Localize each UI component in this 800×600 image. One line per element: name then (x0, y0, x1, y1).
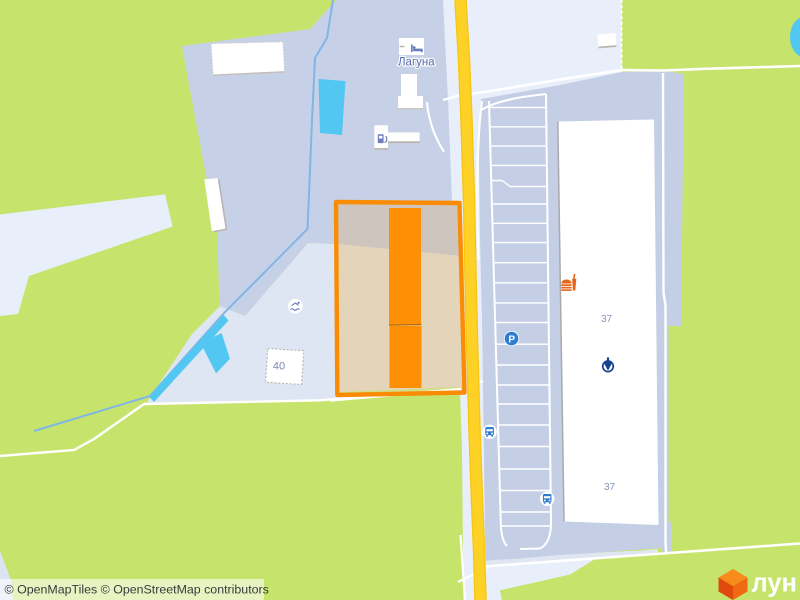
svg-text:лун: лун (752, 570, 797, 598)
svg-text:37: 37 (601, 314, 613, 325)
svg-text:Лагуна: Лагуна (398, 57, 435, 69)
svg-text:P: P (508, 334, 515, 345)
svg-text:37: 37 (604, 482, 616, 493)
svg-text:40: 40 (273, 361, 285, 373)
svg-text:© OpenMapTiles © OpenStreetMap: © OpenMapTiles © OpenStreetMap contribut… (5, 583, 269, 597)
